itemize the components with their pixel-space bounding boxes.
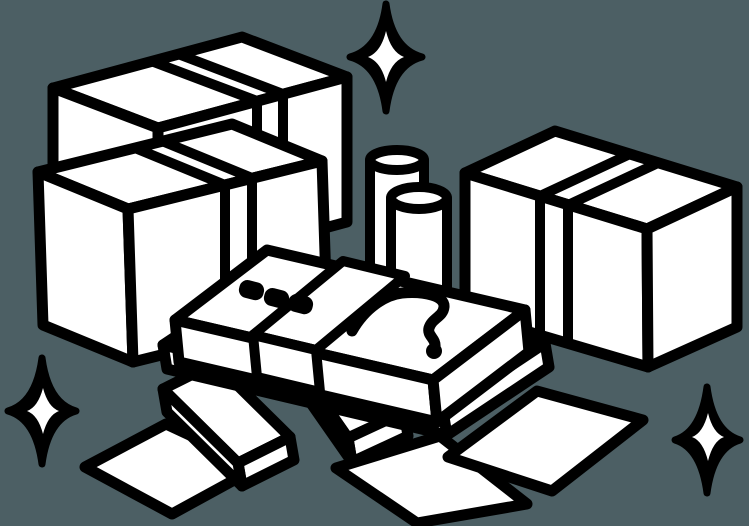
scribble-drop	[426, 343, 442, 359]
coin-roll-back-top	[370, 150, 424, 170]
illustration-stage: Monochrome line-art illustration of seal…	[0, 0, 749, 526]
wrap-band-front	[253, 335, 320, 392]
box-front-left-front-face	[38, 172, 133, 362]
coin-roll-front-top	[391, 187, 447, 209]
boxes-and-money-illustration: Monochrome line-art illustration of seal…	[0, 0, 749, 526]
